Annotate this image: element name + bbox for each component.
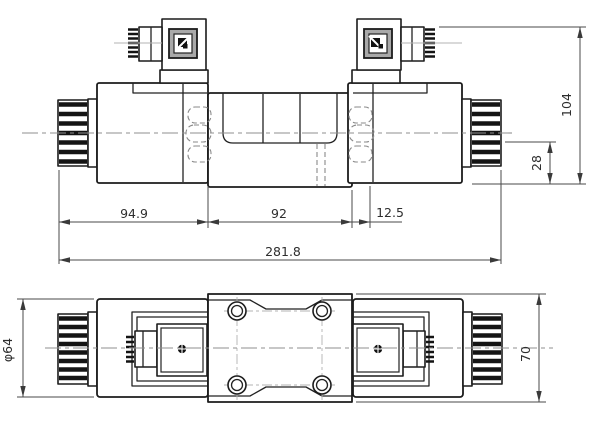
- plan-right-gland-collar: [403, 331, 425, 367]
- plan-left-cap-outline: [58, 314, 88, 384]
- plan-right-end-cap: [463, 312, 502, 386]
- dim-label-phi64: φ64: [0, 338, 15, 362]
- right-electrical-connector: [352, 19, 435, 83]
- front-view: 94.9 92 12.5 281.8 104 28: [22, 19, 586, 264]
- plan-left-gland-collar: [135, 331, 157, 367]
- dim-label-12-5: 12.5: [376, 205, 404, 220]
- plan-view: φ64 70: [0, 294, 553, 402]
- valve-body-outline: [208, 93, 352, 187]
- plan-right-cap-ring: [463, 312, 472, 386]
- valve-dimension-drawing: 94.9 92 12.5 281.8 104 28: [0, 0, 600, 429]
- dim-label-92: 92: [271, 206, 287, 221]
- plan-right-cap-outline: [472, 314, 502, 384]
- left-connector-foot: [160, 70, 208, 83]
- dim-label-94-9: 94.9: [120, 206, 148, 221]
- plan-left-end-cap: [58, 312, 97, 386]
- valve-body: [208, 93, 352, 187]
- right-connector-foot: [352, 70, 400, 83]
- dim-label-104: 104: [559, 93, 574, 117]
- dim-label-281-8: 281.8: [265, 244, 301, 259]
- plan-left-cap-ring: [88, 312, 97, 386]
- left-electrical-connector: [128, 19, 208, 83]
- drawing-canvas: 94.9 92 12.5 281.8 104 28: [0, 0, 600, 429]
- dim-label-28: 28: [529, 155, 544, 171]
- dim-label-70: 70: [518, 346, 533, 362]
